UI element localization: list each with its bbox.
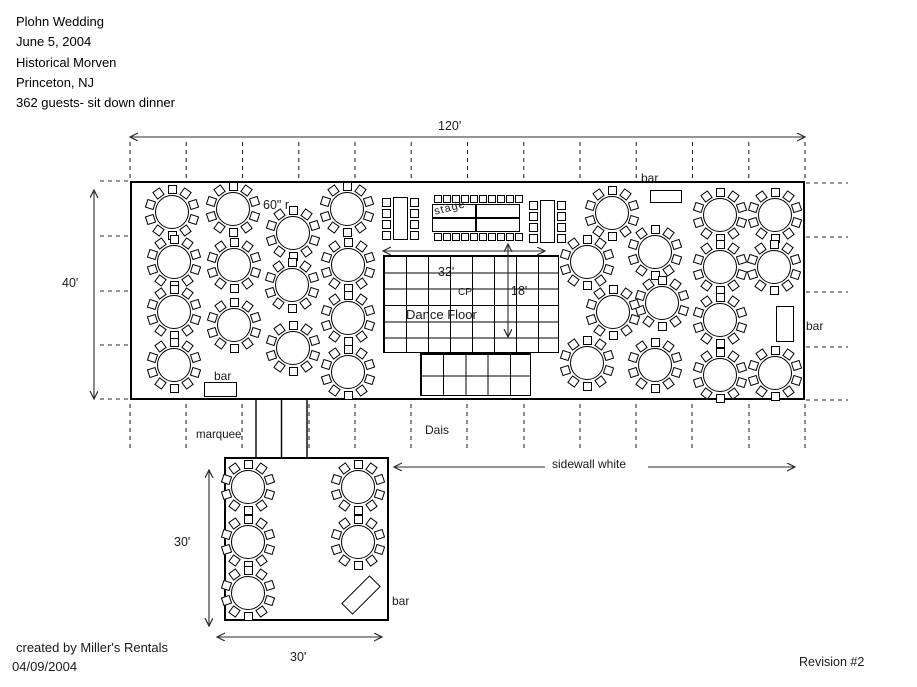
labels-layer: 120' 40' 32' 18' CP' Dance Floor 60" r s… xyxy=(0,0,917,687)
dimension-lower-tent-depth: 30' xyxy=(174,535,190,549)
dais-label: Dais xyxy=(425,424,449,438)
bar-label-lower-tent: bar xyxy=(392,595,409,609)
dimension-dance-floor-depth: 18' xyxy=(511,284,527,298)
round-table-size-label: 60" r xyxy=(263,198,289,212)
bar-label-right: bar xyxy=(806,320,823,334)
stage-label: stage xyxy=(433,198,467,218)
revision-text: Revision #2 xyxy=(799,655,864,669)
creation-date-text: 04/09/2004 xyxy=(12,660,77,675)
marquee-label: marquee xyxy=(196,429,241,442)
dimension-dance-floor-width: 32' xyxy=(438,265,454,279)
bar-label-left: bar xyxy=(214,370,231,384)
sidewall-label: sidewall white xyxy=(549,458,629,472)
dimension-lower-tent-width: 30' xyxy=(290,650,306,664)
bar-label-top: bar xyxy=(641,172,658,186)
dance-floor-label: Dance Floor xyxy=(406,308,477,323)
created-by-text: created by Miller's Rentals xyxy=(16,641,168,656)
dimension-tent-width: 120' xyxy=(438,119,461,133)
dimension-tent-depth: 40' xyxy=(62,276,78,290)
center-pole-label: CP' xyxy=(458,287,474,299)
floor-plan-canvas: Plohn Wedding June 5, 2004 Historical Mo… xyxy=(0,0,917,687)
